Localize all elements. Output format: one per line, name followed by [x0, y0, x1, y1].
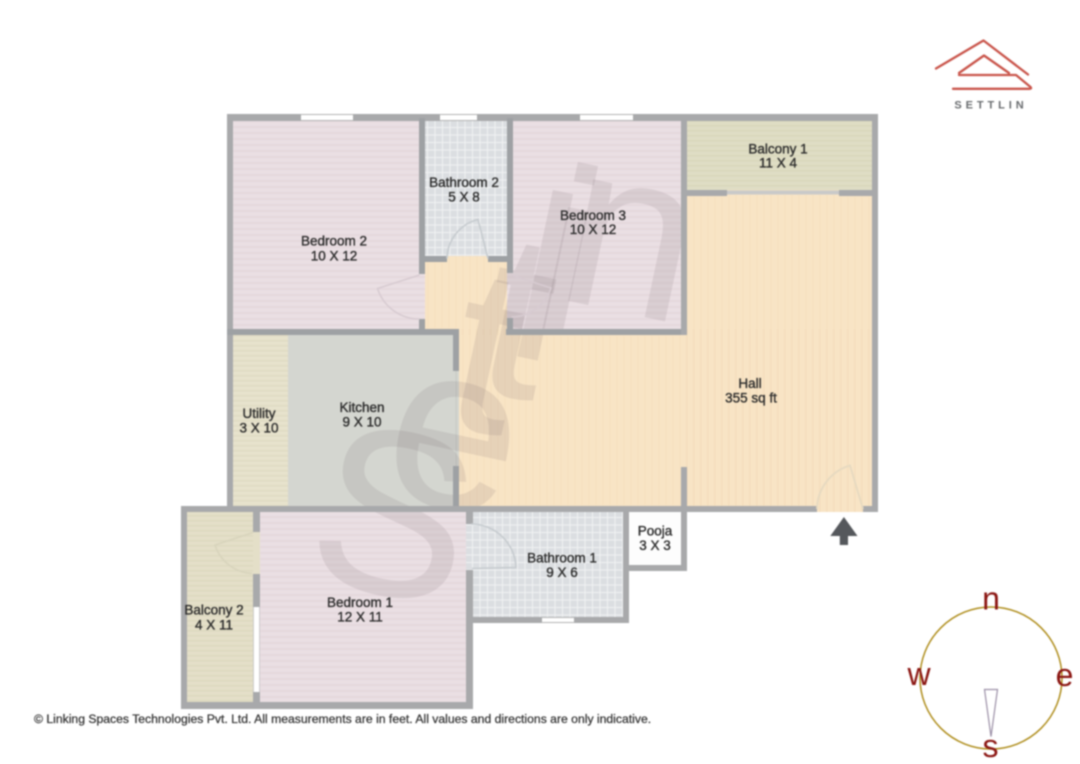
- svg-text:Hall: Hall: [738, 376, 761, 391]
- svg-text:Balcony 1: Balcony 1: [748, 142, 807, 157]
- svg-text:Bedroom 1: Bedroom 1: [327, 595, 393, 610]
- svg-text:e: e: [1056, 657, 1074, 693]
- svg-text:12 X 11: 12 X 11: [337, 610, 383, 625]
- svg-text:9 X 6: 9 X 6: [546, 565, 578, 580]
- svg-text:3 X 3: 3 X 3: [639, 538, 671, 553]
- svg-text:9 X 10: 9 X 10: [342, 415, 381, 430]
- svg-text:Bathroom 2: Bathroom 2: [429, 175, 499, 190]
- svg-text:10 X 12: 10 X 12: [570, 222, 617, 237]
- svg-text:11 X 4: 11 X 4: [759, 156, 798, 171]
- svg-text:10 X 12: 10 X 12: [311, 249, 358, 264]
- svg-text:4 X 11: 4 X 11: [195, 618, 233, 633]
- svg-text:Kitchen: Kitchen: [339, 400, 384, 415]
- svg-text:5 X 8: 5 X 8: [448, 190, 480, 205]
- svg-text:3 X 10: 3 X 10: [239, 421, 278, 436]
- svg-text:Bedroom 3: Bedroom 3: [560, 208, 626, 223]
- svg-text:s: s: [983, 728, 999, 764]
- svg-text:Pooja: Pooja: [638, 524, 673, 539]
- svg-text:Utility: Utility: [243, 406, 276, 421]
- svg-text:Bedroom 2: Bedroom 2: [301, 234, 367, 249]
- svg-text:© Linking Spaces Technologies: © Linking Spaces Technologies Pvt. Ltd. …: [34, 712, 651, 726]
- svg-text:Bathroom 1: Bathroom 1: [527, 551, 597, 566]
- svg-text:355 sq ft: 355 sq ft: [725, 391, 777, 406]
- svg-text:Balcony 2: Balcony 2: [184, 603, 243, 618]
- svg-text:SETTLIN: SETTLIN: [954, 100, 1027, 112]
- svg-text:n: n: [982, 581, 1000, 617]
- svg-text:w: w: [906, 656, 931, 692]
